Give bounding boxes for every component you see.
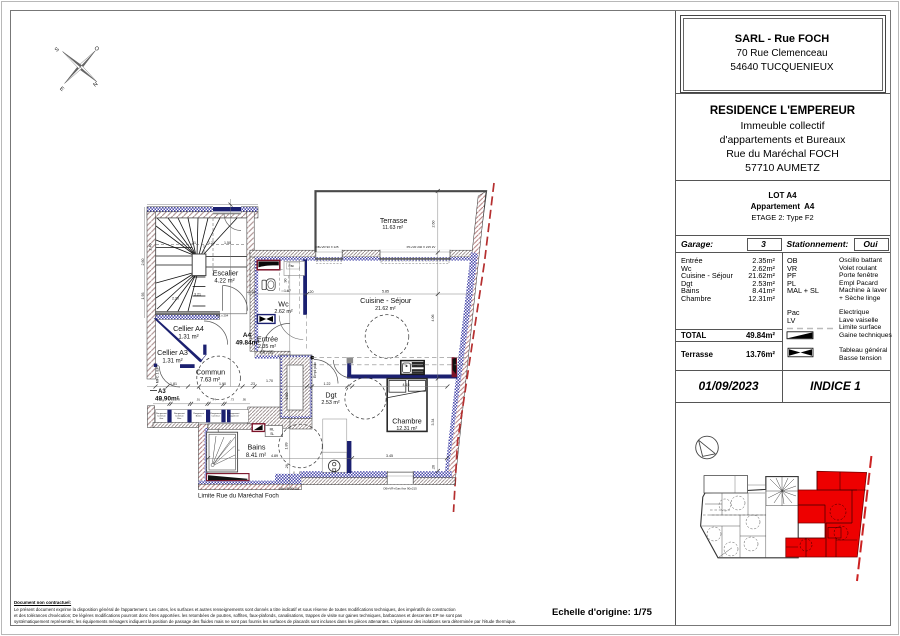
svg-text:1.22: 1.22 [324, 382, 331, 386]
svg-text:8.41 m²: 8.41 m² [246, 453, 266, 459]
svg-text:Cellier A3: Cellier A3 [157, 348, 188, 357]
svg-text:Rangement: Rangement [229, 412, 240, 415]
svg-text:Wc: Wc [278, 300, 289, 309]
svg-text:OB+VR 90 X 125: OB+VR 90 X 125 [315, 245, 338, 249]
svg-text:1.93: 1.93 [141, 293, 145, 300]
svg-text:Rangement: Rangement [210, 412, 221, 415]
svg-text:Commun: Commun [211, 416, 220, 418]
svg-text:.74: .74 [212, 398, 216, 402]
svg-text:SL: SL [270, 432, 274, 436]
svg-text:.21: .21 [191, 241, 196, 245]
svg-text:Chambre: Chambre [392, 417, 422, 426]
svg-text:7.63 m²: 7.63 m² [200, 378, 220, 384]
svg-text:3.45: 3.45 [386, 454, 393, 458]
svg-text:.26: .26 [285, 464, 289, 469]
svg-text:1.60: 1.60 [285, 393, 289, 400]
svg-text:Gaz: Gaz [159, 418, 163, 420]
svg-text:2.60: 2.60 [141, 259, 145, 266]
svg-text:2.62 m²: 2.62 m² [274, 309, 292, 315]
svg-text:3.34: 3.34 [431, 419, 435, 426]
svg-text:2.20: 2.20 [172, 297, 179, 301]
svg-text:Elec: Elec [177, 418, 181, 420]
svg-text:1.90: 1.90 [219, 382, 226, 386]
svg-text:1.77: 1.77 [249, 333, 253, 340]
svg-text:ML: ML [270, 427, 275, 431]
svg-text:E: E [58, 86, 65, 93]
svg-text:S: S [54, 46, 61, 53]
svg-text:.48: .48 [176, 398, 180, 402]
svg-text:.95: .95 [242, 398, 246, 402]
svg-text:841 x 204: 841 x 204 [216, 313, 229, 317]
svg-text:Cellier A4: Cellier A4 [173, 324, 204, 333]
svg-text:Entrée: Entrée [257, 335, 278, 344]
svg-text:49.84m²: 49.84m² [236, 340, 260, 347]
svg-text:.23: .23 [250, 382, 255, 386]
svg-text:1.89: 1.89 [284, 443, 288, 450]
svg-text:2.60: 2.60 [432, 221, 436, 228]
svg-text:PF+VR 240 X 215 2V: PF+VR 240 X 215 2V [407, 245, 436, 249]
svg-text:12.31 m²: 12.31 m² [396, 426, 417, 432]
svg-text:4.15: 4.15 [403, 383, 410, 387]
svg-text:5.85: 5.85 [382, 290, 389, 294]
svg-text:Cuisine - Séjour: Cuisine - Séjour [360, 296, 412, 305]
svg-text:Boites: Boites [196, 415, 202, 418]
svg-text:Rangement: Rangement [193, 412, 204, 415]
svg-text:N: N [92, 81, 99, 88]
svg-text:.73: .73 [230, 398, 234, 402]
svg-text:Pac: Pac [289, 264, 295, 268]
svg-text:3.21: 3.21 [194, 293, 201, 297]
svg-text:.91: .91 [196, 398, 200, 402]
svg-text:1.70: 1.70 [266, 379, 273, 383]
svg-text:1.81: 1.81 [170, 382, 177, 386]
svg-text:4.22 m²: 4.22 m² [214, 279, 234, 285]
svg-text:.20: .20 [309, 290, 314, 294]
svg-text:1.21: 1.21 [208, 241, 215, 245]
svg-text:Rangement: Rangement [156, 412, 167, 415]
svg-text:11.63 m²: 11.63 m² [382, 225, 403, 231]
svg-text:4.89: 4.89 [271, 454, 278, 458]
svg-text:Bains: Bains [248, 443, 266, 452]
svg-text:.51: .51 [158, 398, 162, 402]
svg-text:Escalier: Escalier [213, 269, 239, 278]
svg-text:.26: .26 [431, 465, 435, 470]
svg-text:Limite Rue du Maréchal Foch: Limite Rue du Maréchal Foch [198, 493, 279, 500]
svg-text:OB+VR+Gas fixe 90x215: OB+VR+Gas fixe 90x215 [383, 487, 417, 491]
svg-text:A3: A3 [158, 389, 166, 395]
svg-text:2.53 m²: 2.53 m² [321, 400, 339, 406]
svg-text:1.31 m²: 1.31 m² [178, 335, 198, 341]
svg-text:1.50: 1.50 [224, 241, 231, 245]
svg-text:Logement: Logement [229, 415, 239, 418]
svg-text:Commun: Commun [196, 368, 225, 377]
svg-text:Terrasse: Terrasse [380, 216, 408, 225]
svg-text:8.70 + 2.04: 8.70 + 2.04 [260, 351, 274, 355]
svg-text:MFC 1 EP3: MFC 1 EP3 [156, 365, 160, 384]
svg-text:21.62 m²: 21.62 m² [375, 306, 396, 312]
svg-text:.90: .90 [284, 279, 288, 284]
svg-text:1.67: 1.67 [284, 289, 291, 293]
svg-text:2.40: 2.40 [149, 244, 153, 251]
svg-text:1.31 m²: 1.31 m² [162, 359, 182, 365]
svg-text:Rangement: Rangement [174, 412, 185, 415]
svg-text:OB+VR 90x115: OB+VR 90x115 [279, 487, 300, 491]
svg-text:Empl plac: Empl plac [313, 362, 317, 378]
svg-text:.22: .22 [251, 290, 256, 294]
svg-text:4.06: 4.06 [431, 315, 435, 322]
svg-text:Dgt: Dgt [325, 391, 336, 400]
